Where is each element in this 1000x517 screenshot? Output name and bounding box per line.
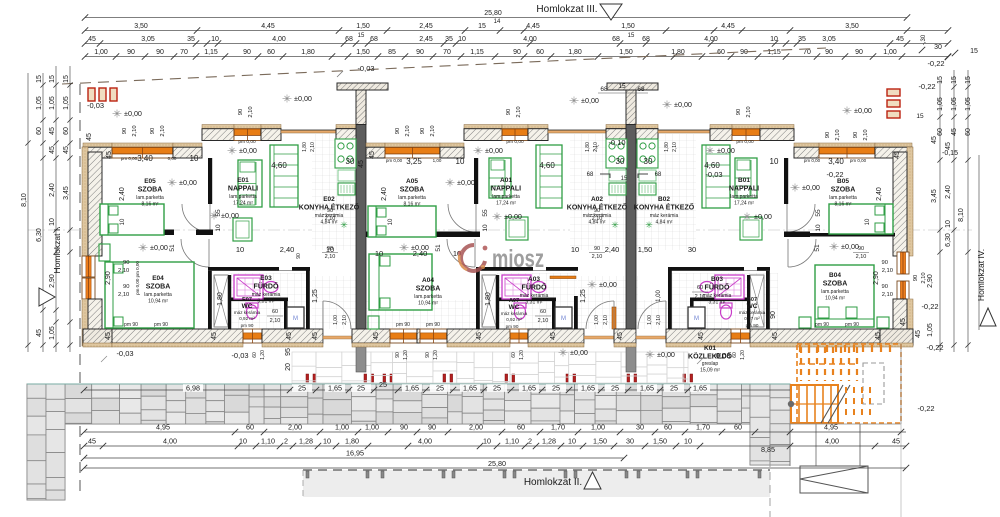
svg-text:10,94 m²: 10,94 m² (418, 301, 438, 307)
svg-text:45: 45 (312, 332, 319, 340)
svg-text:-0,22: -0,22 (918, 82, 935, 91)
svg-text:2,10: 2,10 (882, 292, 893, 298)
svg-text:45: 45 (88, 36, 96, 43)
svg-text:2,10: 2,10 (592, 254, 603, 260)
svg-text:±0,00: ±0,00 (599, 280, 617, 289)
svg-text:-0,22: -0,22 (921, 302, 938, 311)
svg-text:1,65: 1,65 (463, 384, 477, 393)
svg-text:17,24 m²: 17,24 m² (734, 201, 754, 207)
svg-text:68: 68 (600, 86, 608, 93)
svg-text:15: 15 (916, 113, 924, 120)
svg-text:1,50: 1,50 (653, 437, 667, 446)
svg-text:WC: WC (242, 303, 253, 310)
svg-text:2,10: 2,10 (310, 142, 316, 152)
svg-text:pm 0,00: pm 0,00 (386, 158, 403, 163)
svg-text:±0,00: ±0,00 (150, 243, 168, 252)
svg-text:lam.parketta: lam.parketta (414, 294, 442, 300)
svg-text:60: 60 (63, 127, 70, 135)
svg-text:1,05: 1,05 (49, 326, 56, 340)
svg-text:A05: A05 (406, 178, 418, 185)
svg-text:1,80: 1,80 (217, 292, 224, 306)
svg-text:máz kerámia: máz kerámia (520, 293, 549, 299)
svg-text:0,97 m²: 0,97 m² (744, 316, 760, 321)
svg-text:E03: E03 (260, 275, 272, 282)
svg-text:10: 10 (568, 437, 576, 446)
svg-text:60: 60 (697, 285, 703, 291)
svg-text:4,60: 4,60 (539, 161, 555, 170)
svg-text:1,15: 1,15 (204, 49, 218, 56)
svg-text:2,40: 2,40 (876, 187, 883, 201)
svg-text:1,80: 1,80 (585, 142, 591, 152)
svg-text:1,00: 1,00 (594, 315, 600, 325)
svg-text:60: 60 (536, 49, 544, 56)
svg-text:2,40: 2,40 (945, 185, 952, 199)
svg-text:45: 45 (772, 332, 779, 340)
svg-text:lam.parketta: lam.parketta (136, 195, 164, 201)
svg-text:±0,00: ±0,00 (485, 146, 503, 155)
svg-text:1,65: 1,65 (522, 384, 536, 393)
svg-text:pm 90: pm 90 (746, 323, 759, 328)
svg-text:90: 90 (122, 128, 128, 134)
svg-text:90: 90 (420, 128, 426, 134)
svg-text:45: 45 (49, 127, 56, 135)
svg-text:±0,00: ±0,00 (802, 183, 820, 192)
svg-text:68: 68 (655, 172, 662, 178)
svg-text:6,30: 6,30 (36, 228, 43, 242)
svg-text:60: 60 (717, 49, 725, 56)
svg-text:máz kerámia: máz kerámia (252, 292, 281, 298)
svg-text:pm 90: pm 90 (154, 322, 168, 328)
svg-text:±0,00: ±0,00 (570, 348, 588, 357)
svg-text:✳: ✳ (645, 220, 653, 230)
svg-text:51: 51 (169, 244, 176, 252)
svg-text:90: 90 (858, 246, 864, 252)
svg-text:10: 10 (815, 224, 822, 232)
svg-text:4,00: 4,00 (163, 437, 177, 446)
svg-text:15: 15 (970, 48, 978, 55)
svg-text:2,10: 2,10 (516, 106, 522, 117)
svg-text:45: 45 (931, 136, 938, 144)
svg-text:1,80: 1,80 (345, 437, 359, 446)
svg-text:3,40: 3,40 (828, 157, 844, 166)
svg-text:15: 15 (358, 33, 365, 39)
svg-text:60: 60 (267, 49, 275, 56)
svg-text:68: 68 (345, 36, 353, 43)
svg-text:2: 2 (284, 437, 288, 446)
svg-text:2: 2 (528, 437, 532, 446)
svg-text:45: 45 (698, 332, 705, 340)
svg-text:✳: ✳ (340, 220, 348, 230)
svg-text:1,80: 1,80 (302, 142, 308, 152)
svg-text:M: M (293, 316, 298, 322)
svg-text:1,00: 1,00 (656, 290, 662, 302)
svg-text:90: 90 (506, 109, 512, 115)
svg-text:45: 45 (915, 330, 922, 338)
svg-text:lam.parketta: lam.parketta (492, 194, 520, 200)
svg-text:2,10: 2,10 (325, 254, 336, 260)
svg-text:máz kerámia: máz kerámia (234, 310, 261, 315)
svg-text:90: 90 (825, 132, 831, 138)
svg-text:1,20: 1,20 (403, 350, 409, 360)
svg-text:15: 15 (49, 75, 56, 83)
svg-text:B03: B03 (711, 276, 723, 283)
svg-text:25: 25 (379, 380, 387, 389)
svg-text:1,00: 1,00 (94, 49, 108, 56)
svg-text:1,70: 1,70 (551, 423, 565, 432)
svg-text:E04: E04 (152, 275, 164, 282)
svg-text:4,60: 4,60 (271, 161, 287, 170)
svg-text:90: 90 (736, 109, 742, 115)
svg-text:±0,00: ±0,00 (854, 106, 872, 115)
svg-text:-,30: -,30 (921, 34, 927, 45)
svg-text:3,45: 3,45 (63, 186, 70, 200)
svg-text:60: 60 (937, 128, 944, 136)
svg-text:pm 0,00 pm 0,00: pm 0,00 pm 0,00 (135, 261, 140, 295)
svg-text:15: 15 (965, 76, 972, 84)
svg-text:1,20: 1,20 (433, 350, 439, 360)
svg-text:SZOBA: SZOBA (416, 286, 441, 293)
svg-text:25: 25 (611, 384, 619, 393)
svg-text:10: 10 (326, 245, 334, 254)
svg-text:55: 55 (482, 209, 489, 217)
svg-text:FÜRDŐ: FÜRDŐ (522, 283, 547, 292)
svg-text:1,05: 1,05 (36, 96, 43, 110)
svg-text:60: 60 (732, 352, 738, 358)
svg-text:45: 45 (88, 437, 96, 446)
svg-text:SZOBA: SZOBA (831, 187, 856, 194)
svg-text:1,65: 1,65 (640, 384, 654, 393)
svg-text:10: 10 (865, 218, 871, 225)
svg-text:FÜRDŐ: FÜRDŐ (705, 283, 730, 292)
svg-text:90: 90 (855, 49, 863, 56)
svg-text:2,90: 2,90 (105, 271, 112, 285)
svg-text:45: 45 (369, 151, 376, 159)
svg-text:90: 90 (513, 49, 521, 56)
svg-text:±0,00: ±0,00 (294, 94, 312, 103)
svg-text:10: 10 (482, 224, 489, 232)
svg-text:90: 90 (327, 208, 333, 214)
svg-text:pm 0,00: pm 0,00 (506, 139, 524, 145)
svg-text:90: 90 (123, 260, 129, 266)
svg-text:6,30: 6,30 (945, 233, 952, 247)
svg-text:-0,22: -0,22 (917, 404, 934, 413)
svg-text:1,50: 1,50 (619, 49, 633, 56)
svg-text:45: 45 (945, 142, 952, 150)
svg-text:lam.parketta: lam.parketta (144, 292, 172, 298)
svg-text:1,20: 1,20 (519, 350, 525, 360)
svg-text:8,16 m²: 8,16 m² (142, 202, 159, 208)
svg-text:25: 25 (357, 384, 365, 393)
svg-text:SZOBA: SZOBA (138, 187, 163, 194)
svg-text:2,45: 2,45 (419, 36, 433, 43)
svg-text:30: 30 (636, 423, 644, 432)
svg-text:2,45: 2,45 (419, 23, 433, 30)
svg-text:1,50: 1,50 (638, 245, 653, 254)
svg-text:3,40: 3,40 (137, 154, 153, 163)
svg-text:±0,00: ±0,00 (841, 242, 859, 251)
svg-text:55: 55 (215, 209, 222, 217)
svg-text:2,10: 2,10 (342, 315, 348, 325)
svg-text:30: 30 (644, 157, 653, 166)
svg-text:pm 90: pm 90 (124, 322, 138, 328)
svg-text:15: 15 (478, 23, 486, 30)
svg-text:60: 60 (664, 423, 672, 432)
svg-text:2,10: 2,10 (592, 216, 603, 222)
svg-text:1,05: 1,05 (63, 96, 70, 110)
svg-text:0,00: 0,00 (168, 156, 177, 161)
svg-text:pm 0,00: pm 0,00 (121, 156, 138, 161)
svg-text:M: M (561, 316, 566, 322)
svg-text:95: 95 (285, 348, 292, 356)
svg-text:3,45: 3,45 (931, 189, 938, 203)
svg-text:A02: A02 (591, 196, 603, 203)
svg-text:2,40: 2,40 (119, 187, 126, 201)
svg-text:16,95: 16,95 (346, 449, 364, 458)
svg-text:90: 90 (882, 284, 888, 290)
svg-text:90: 90 (882, 260, 888, 266)
svg-text:90: 90 (400, 423, 408, 432)
svg-text:10,94 m²: 10,94 m² (148, 299, 168, 305)
svg-text:45: 45 (875, 332, 882, 340)
svg-text:4,95: 4,95 (824, 423, 838, 432)
svg-text:1,80: 1,80 (664, 142, 670, 152)
svg-text:-0,03: -0,03 (87, 101, 104, 110)
svg-text:1,65: 1,65 (328, 384, 342, 393)
svg-text:35: 35 (187, 36, 195, 43)
svg-text:25: 25 (436, 384, 444, 393)
svg-text:2,10: 2,10 (593, 142, 599, 152)
svg-text:1,00: 1,00 (647, 315, 653, 325)
svg-text:-0,03: -0,03 (705, 170, 722, 179)
svg-text:2,10: 2,10 (270, 318, 281, 324)
svg-text:3,05: 3,05 (822, 36, 836, 43)
svg-text:15: 15 (937, 76, 944, 84)
svg-text:1,05: 1,05 (927, 323, 934, 337)
svg-text:15,09 m²: 15,09 m² (700, 368, 720, 374)
svg-text:10: 10 (684, 437, 692, 446)
svg-text:SZOBA: SZOBA (400, 187, 425, 194)
svg-text:85: 85 (388, 49, 396, 56)
svg-text:máz kerámia: máz kerámia (703, 293, 732, 299)
svg-text:±0,00: ±0,00 (457, 178, 475, 187)
svg-text:Homlokzat III.: Homlokzat III. (536, 4, 597, 15)
svg-text:68: 68 (370, 36, 378, 43)
svg-text:3,50: 3,50 (845, 23, 859, 30)
svg-text:1,05: 1,05 (951, 97, 958, 111)
svg-text:1,80: 1,80 (301, 49, 315, 56)
svg-text:68: 68 (587, 172, 594, 178)
svg-text:4,45: 4,45 (261, 23, 275, 30)
svg-text:68: 68 (612, 36, 620, 43)
svg-text:60: 60 (272, 309, 278, 315)
svg-text:Homlokzat IV.: Homlokzat IV. (976, 249, 986, 301)
svg-text:2,10: 2,10 (672, 142, 678, 152)
svg-text:1,05: 1,05 (965, 97, 972, 111)
svg-text:8,10: 8,10 (21, 193, 28, 207)
svg-text:90: 90 (150, 128, 156, 134)
svg-text:-0,03: -0,03 (231, 351, 248, 360)
svg-text:2,10: 2,10 (160, 125, 166, 136)
svg-text:lam.parketta: lam.parketta (398, 195, 426, 201)
svg-text:2,00: 2,00 (288, 423, 302, 432)
svg-text:8,16 m²: 8,16 m² (404, 202, 421, 208)
svg-text:lam.parketta: lam.parketta (821, 289, 849, 295)
svg-text:pm 90: pm 90 (241, 323, 254, 328)
svg-text:45: 45 (900, 318, 907, 326)
svg-text:90: 90 (740, 49, 748, 56)
svg-text:30: 30 (688, 245, 696, 254)
svg-text:45: 45 (49, 146, 56, 154)
svg-text:90: 90 (594, 208, 600, 214)
svg-text:±0,00: ±0,00 (581, 96, 599, 105)
svg-text:90: 90 (770, 311, 777, 319)
svg-text:68: 68 (637, 86, 645, 93)
svg-text:90: 90 (127, 49, 135, 56)
svg-text:10: 10 (211, 36, 219, 43)
svg-text:lam.parketta: lam.parketta (829, 195, 857, 201)
svg-text:90: 90 (243, 49, 251, 56)
svg-text:45: 45 (951, 128, 958, 136)
svg-text:30: 30 (626, 437, 634, 446)
svg-text:45: 45 (373, 332, 380, 340)
svg-text:90: 90 (913, 275, 919, 281)
svg-text:1,00: 1,00 (433, 158, 442, 163)
svg-text:70: 70 (180, 49, 188, 56)
svg-text:2,10: 2,10 (248, 106, 254, 117)
svg-text:35: 35 (798, 36, 806, 43)
svg-text:90: 90 (416, 49, 424, 56)
svg-text:2,10: 2,10 (746, 106, 752, 117)
svg-text:1,80: 1,80 (568, 49, 582, 56)
svg-text:2,00: 2,00 (469, 423, 483, 432)
svg-text:-0,03: -0,03 (713, 351, 730, 360)
svg-text:4,00: 4,00 (704, 36, 718, 43)
svg-text:2,10: 2,10 (538, 318, 549, 324)
svg-text:FÜRDŐ: FÜRDŐ (254, 282, 279, 291)
svg-text:60: 60 (965, 128, 972, 136)
svg-text:1,28: 1,28 (299, 437, 313, 446)
svg-text:2,90: 2,90 (927, 274, 934, 288)
svg-text:2,10: 2,10 (132, 125, 138, 136)
svg-text:1,00: 1,00 (591, 423, 605, 432)
svg-text:30: 30 (616, 157, 625, 166)
svg-text:2,10: 2,10 (695, 294, 706, 300)
svg-text:45: 45 (286, 332, 293, 340)
svg-text:6,98: 6,98 (186, 384, 200, 393)
svg-text:pm 90: pm 90 (506, 324, 519, 329)
svg-text:90: 90 (156, 49, 164, 56)
svg-text:10: 10 (458, 36, 466, 43)
svg-text:30: 30 (934, 44, 942, 51)
svg-text:17,24 m²: 17,24 m² (233, 201, 253, 207)
svg-text:M: M (694, 316, 699, 322)
svg-text:45: 45 (106, 151, 113, 159)
svg-text:4,00: 4,00 (272, 36, 286, 43)
svg-text:10: 10 (770, 157, 779, 166)
svg-text:1,05: 1,05 (49, 96, 56, 110)
svg-text:1,00: 1,00 (333, 315, 339, 325)
svg-text:1,50: 1,50 (356, 23, 370, 30)
svg-text:90: 90 (123, 284, 129, 290)
svg-text:45: 45 (892, 437, 900, 446)
svg-text:pm 90: pm 90 (426, 322, 440, 328)
svg-text:10: 10 (236, 245, 244, 254)
svg-text:1,65: 1,65 (405, 384, 419, 393)
svg-text:greslap: greslap (702, 361, 719, 367)
svg-text:1,80: 1,80 (485, 292, 492, 306)
svg-text:1,00: 1,00 (335, 423, 349, 432)
svg-text:-0,15: -0,15 (942, 150, 958, 157)
svg-text:máz kerámia: máz kerámia (739, 310, 766, 315)
svg-text:90: 90 (296, 253, 302, 259)
svg-text:±0,00: ±0,00 (239, 146, 257, 155)
svg-text:±0,00: ±0,00 (754, 212, 772, 221)
svg-text:1,50: 1,50 (621, 23, 635, 30)
svg-text:±0,00: ±0,00 (717, 146, 735, 155)
svg-text:1,65: 1,65 (581, 384, 595, 393)
svg-text:E05: E05 (144, 178, 156, 185)
svg-text:45: 45 (211, 332, 218, 340)
svg-text:0,92 m²: 0,92 m² (506, 317, 522, 322)
svg-text:2,10: 2,10 (856, 254, 867, 260)
svg-text:8,10: 8,10 (958, 208, 965, 222)
svg-text:lam.parketta: lam.parketta (730, 194, 758, 200)
svg-text:45: 45 (476, 332, 483, 340)
svg-text:45: 45 (86, 133, 93, 141)
svg-text:60: 60 (517, 423, 525, 432)
svg-text:45: 45 (617, 332, 624, 340)
svg-text:25,80: 25,80 (488, 459, 506, 468)
svg-text:1,20: 1,20 (260, 350, 266, 360)
svg-text:3,50: 3,50 (134, 23, 148, 30)
svg-text:±0,00: ±0,00 (504, 212, 522, 221)
svg-text:15: 15 (621, 176, 628, 182)
svg-text:60: 60 (36, 127, 43, 135)
svg-text:3,05: 3,05 (141, 36, 155, 43)
svg-text:2,10: 2,10 (882, 268, 893, 274)
svg-text:máz kerámia: máz kerámia (650, 213, 679, 219)
svg-text:30: 30 (346, 157, 355, 166)
svg-text:2,10: 2,10 (118, 268, 129, 274)
svg-text:WC: WC (509, 304, 520, 311)
svg-text:2,40: 2,40 (49, 183, 56, 197)
svg-text:3,31 m²: 3,31 m² (709, 300, 726, 306)
svg-text:2,10: 2,10 (405, 125, 411, 136)
svg-text:1,00: 1,00 (365, 423, 379, 432)
svg-text:B02: B02 (658, 196, 670, 203)
svg-text:10: 10 (770, 36, 778, 43)
svg-text:15: 15 (951, 76, 958, 84)
svg-text:1,10: 1,10 (505, 437, 519, 446)
svg-text:KONYHA ÉTKEZŐ: KONYHA ÉTKEZŐ (634, 203, 695, 212)
svg-text:17,24 m²: 17,24 m² (496, 201, 516, 207)
svg-text:E01: E01 (237, 177, 249, 184)
svg-text:pm 90: pm 90 (845, 322, 859, 328)
svg-text:B04: B04 (829, 272, 841, 279)
svg-text:pm 0,00: pm 0,00 (804, 158, 821, 163)
svg-text:4,84 m²: 4,84 m² (656, 220, 673, 226)
svg-text:lam.parketta: lam.parketta (229, 194, 257, 200)
svg-text:55: 55 (815, 209, 822, 217)
svg-text:SZOBA: SZOBA (823, 281, 848, 288)
svg-text:-0,22: -0,22 (926, 343, 943, 352)
svg-text:90: 90 (594, 246, 600, 252)
svg-text:1,70: 1,70 (696, 423, 710, 432)
svg-text:1,10: 1,10 (261, 437, 275, 446)
svg-text:B01: B01 (738, 177, 750, 184)
svg-text:1,20: 1,20 (740, 350, 746, 360)
svg-text:±0,00: ±0,00 (674, 100, 692, 109)
